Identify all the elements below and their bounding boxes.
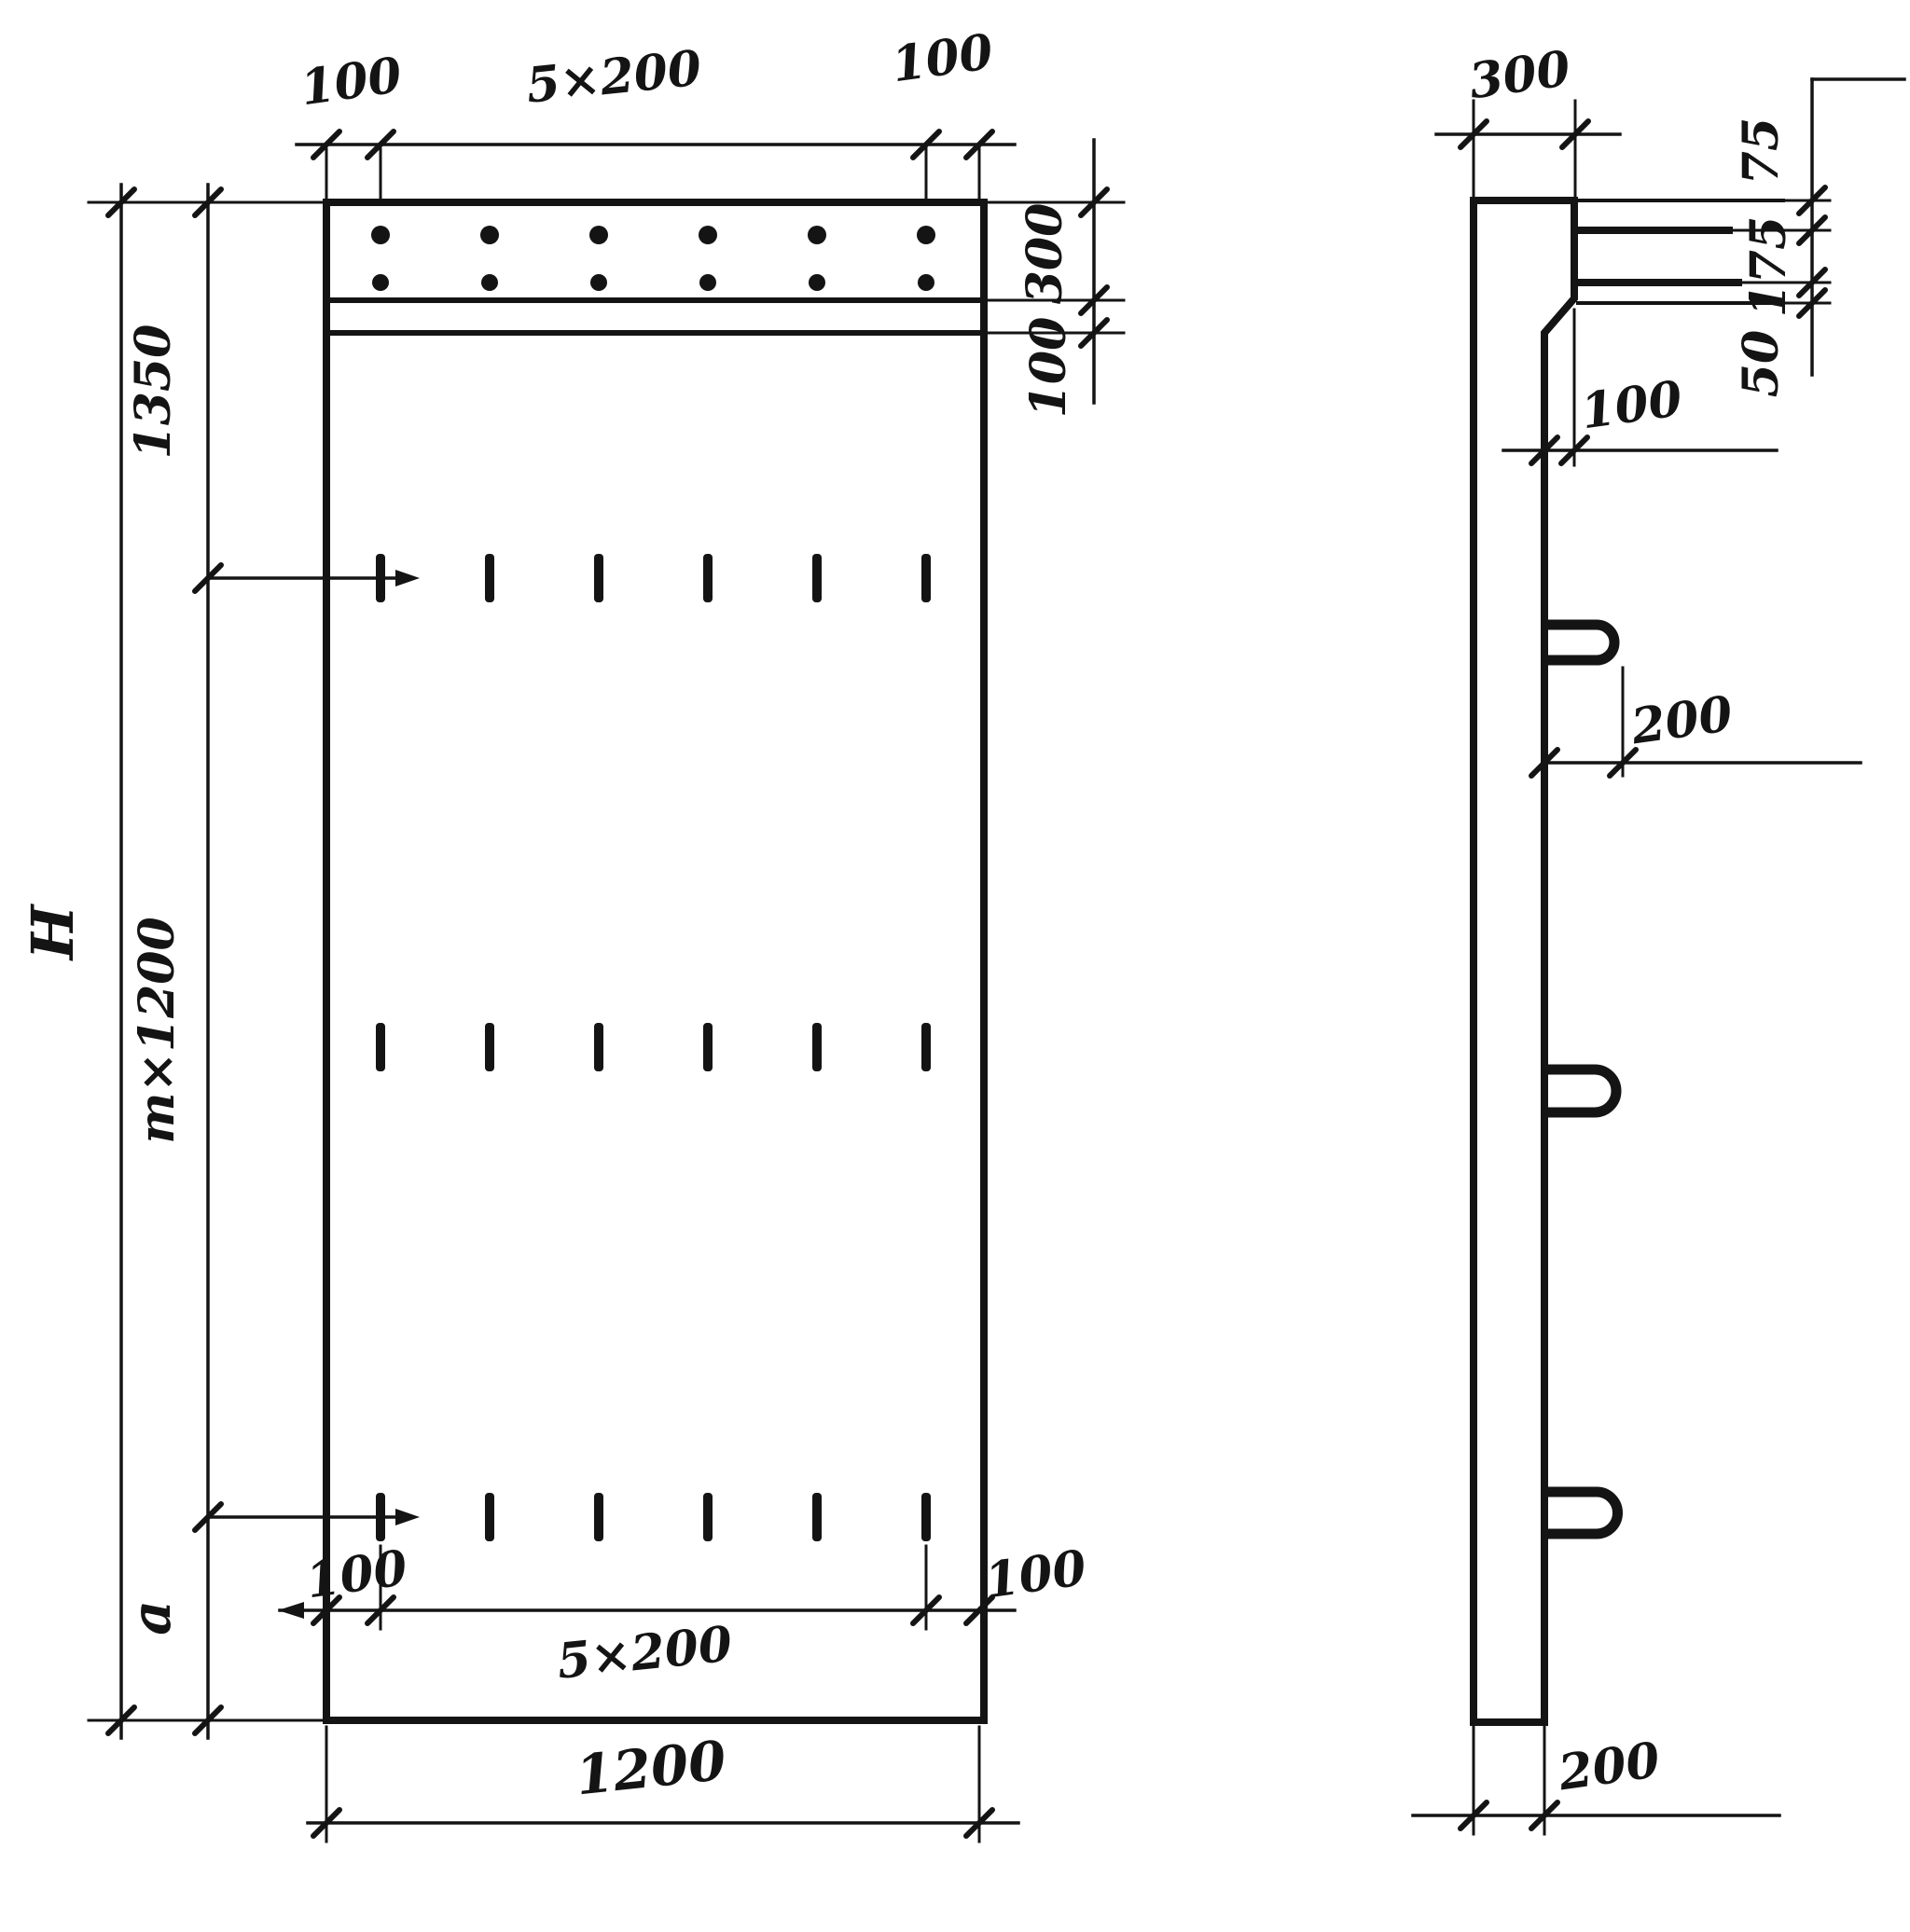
front-view: 100 5×200 100 300 100 H bbox=[19, 23, 1124, 1842]
dim-label-side-step: 100 bbox=[1578, 370, 1686, 441]
dim-label-overall-width: 1200 bbox=[573, 1729, 729, 1808]
dim-label-bottom-right-margin: 100 bbox=[982, 1539, 1090, 1610]
loop-bottom bbox=[1544, 1492, 1618, 1534]
dim-label-loop-length: 200 bbox=[1627, 685, 1737, 756]
panel-drawing: 100 5×200 100 300 100 H bbox=[0, 0, 1910, 1932]
dim-label-band-height: 300 bbox=[1017, 203, 1073, 305]
dim-side-top-width: 300 bbox=[1436, 40, 1620, 198]
dim-label-top-right-margin: 100 bbox=[889, 23, 997, 94]
dim-label-left-middle: m×1200 bbox=[129, 917, 186, 1143]
loop-middle bbox=[1544, 1069, 1616, 1112]
slot-marks bbox=[376, 554, 931, 1541]
panel-outline bbox=[326, 202, 984, 1720]
dim-label-bottom-spacing: 5×200 bbox=[554, 1615, 735, 1690]
dim-side-loop-length: 200 bbox=[1531, 668, 1861, 776]
dim-label-left-bottom: a bbox=[119, 1600, 183, 1635]
dim-label-left-top: 1350 bbox=[125, 324, 182, 460]
dim-side-right-chain: 75 175 50 bbox=[1733, 79, 1904, 397]
dim-label-side-right-middle: 175 bbox=[1740, 216, 1797, 318]
dim-side-bottom-width: 200 bbox=[1413, 1727, 1779, 1834]
dim-label-top-left-margin: 100 bbox=[298, 47, 406, 117]
dim-label-side-right-top: 75 bbox=[1733, 117, 1790, 185]
dim-label-side-top-width: 300 bbox=[1466, 40, 1574, 111]
dim-label-top-spacing: 5×200 bbox=[523, 39, 704, 114]
dim-front-right-chain: 300 100 bbox=[987, 140, 1124, 418]
side-view: 300 75 175 50 100 bbox=[1413, 40, 1904, 1834]
dim-bottom-chain: 100 5×200 100 1200 bbox=[278, 1539, 1090, 1842]
drawing-sheet: 100 5×200 100 300 100 H bbox=[0, 0, 1910, 1932]
loop-top bbox=[1544, 625, 1614, 660]
dim-top-chain: 100 5×200 100 bbox=[297, 23, 1015, 198]
dim-label-overall-height: H bbox=[19, 903, 87, 961]
dim-label-side-right-bottom: 50 bbox=[1733, 330, 1790, 397]
dim-label-side-bottom-width: 200 bbox=[1555, 1732, 1664, 1802]
dim-label-band-offset: 100 bbox=[1020, 317, 1077, 419]
anchor-dots bbox=[371, 226, 935, 291]
dim-front-left-chains: H 1350 m×1200 a bbox=[19, 185, 420, 1738]
